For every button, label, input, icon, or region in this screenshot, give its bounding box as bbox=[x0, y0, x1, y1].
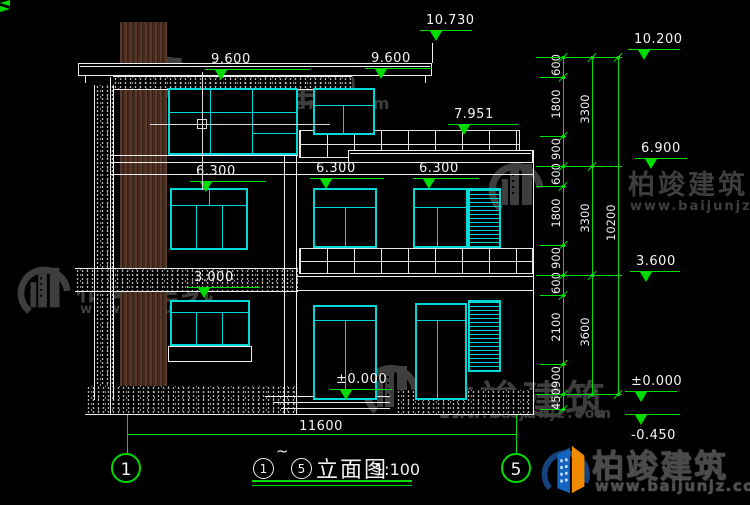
drawing-line bbox=[296, 276, 533, 277]
elevation-marker-label: 6.300 bbox=[316, 161, 356, 176]
dimension-arrow-right bbox=[0, 6, 10, 12]
watermark-logo bbox=[16, 260, 74, 322]
elevation-marker-triangle bbox=[640, 272, 652, 282]
window-mullion bbox=[168, 112, 298, 113]
elevation-marker-label: 6.900 bbox=[641, 141, 681, 156]
cad-pickbox bbox=[197, 119, 207, 129]
elevation-marker-line bbox=[625, 391, 677, 392]
level-line bbox=[540, 295, 566, 296]
elevation-marker-triangle bbox=[458, 125, 470, 135]
dimension-chain-line bbox=[563, 57, 564, 409]
bottom-dimension-label: 11600 bbox=[271, 419, 371, 434]
louver-panel bbox=[468, 300, 501, 372]
elevation-marker-triangle bbox=[375, 69, 387, 79]
elevation-marker-label: 10.730 bbox=[426, 13, 475, 28]
roof-slab bbox=[168, 346, 252, 362]
elevation-marker-line bbox=[635, 158, 687, 159]
window-mullion bbox=[313, 105, 375, 106]
grid-line-1 bbox=[127, 415, 128, 453]
window-mullion bbox=[413, 207, 468, 208]
elevation-marker-label: ±0.000 bbox=[631, 374, 682, 389]
window-mullion bbox=[252, 133, 298, 134]
elevation-marker-line bbox=[630, 271, 680, 272]
level-line bbox=[540, 364, 566, 365]
title-underline-2 bbox=[252, 485, 412, 486]
elevation-marker-label: 7.951 bbox=[454, 107, 494, 122]
drawing-line bbox=[425, 76, 426, 83]
level-line bbox=[536, 275, 622, 276]
drawing-line bbox=[533, 150, 534, 415]
window-mullion bbox=[196, 312, 197, 346]
elevation-marker-triangle bbox=[635, 392, 647, 402]
dimension-chain-line bbox=[618, 57, 619, 394]
drawing-line bbox=[85, 414, 533, 415]
drawing-line bbox=[94, 85, 95, 400]
window-mullion bbox=[196, 205, 197, 250]
elevation-marker-label: ±0.000 bbox=[336, 372, 387, 387]
elevation-marker-line bbox=[625, 414, 680, 415]
bottom-dimension-line bbox=[127, 434, 516, 435]
elevation-marker-triangle bbox=[320, 179, 332, 189]
elevation-marker-triangle bbox=[635, 415, 647, 425]
drawing-line bbox=[350, 153, 531, 154]
dimension-label: 1800 bbox=[549, 86, 563, 122]
level-line bbox=[536, 186, 566, 187]
window-mullion bbox=[415, 320, 467, 321]
grid-line-5 bbox=[516, 415, 517, 453]
drawing-line bbox=[113, 85, 114, 400]
window bbox=[313, 88, 375, 135]
window-mullion bbox=[437, 320, 438, 400]
elevation-marker-triangle bbox=[423, 179, 435, 189]
elevation-marker-triangle bbox=[215, 70, 227, 80]
window-mullion bbox=[345, 207, 346, 248]
window-mullion bbox=[170, 312, 250, 313]
dimension-label: 3600 bbox=[578, 314, 592, 350]
title-tilde: ~ bbox=[276, 442, 289, 460]
drawing-line bbox=[296, 290, 533, 291]
elevation-marker-label: 3.000 bbox=[194, 270, 234, 285]
louver-panel bbox=[468, 188, 501, 248]
drawing-line bbox=[80, 66, 430, 67]
elevation-marker-triangle bbox=[645, 159, 657, 169]
elevation-marker-label: 3.600 bbox=[636, 254, 676, 269]
elevation-marker-line bbox=[628, 49, 680, 50]
drawing-line bbox=[281, 408, 390, 409]
window-mullion bbox=[170, 205, 248, 206]
window bbox=[170, 300, 250, 346]
drawing-line bbox=[273, 402, 390, 403]
elevation-marker-triangle bbox=[638, 50, 650, 60]
drawing-line bbox=[110, 77, 111, 415]
dimension-label: 450 bbox=[549, 381, 563, 417]
level-line bbox=[536, 57, 622, 58]
elevation-marker-triangle bbox=[198, 288, 210, 298]
window-mullion bbox=[345, 320, 346, 400]
window-mullion bbox=[252, 88, 253, 155]
elevation-marker-label: 9.600 bbox=[211, 52, 251, 67]
elevation-marker-triangle bbox=[430, 31, 442, 41]
watermark-logo-icon bbox=[16, 260, 74, 318]
brand-logo-website: www.baijunjz.com bbox=[595, 477, 750, 495]
brand-logo-icon bbox=[541, 437, 595, 499]
dimension-chain-line bbox=[592, 57, 593, 394]
window-mullion bbox=[222, 205, 223, 250]
level-line bbox=[540, 245, 566, 246]
level-line bbox=[536, 394, 622, 395]
stipple-hatch bbox=[86, 386, 298, 414]
window-mullion bbox=[210, 88, 211, 155]
elevation-marker-label: 9.600 bbox=[371, 51, 411, 66]
balcony-railing bbox=[299, 248, 533, 274]
dimension-label: 2100 bbox=[549, 309, 563, 345]
grid-bubble-1: 1 bbox=[111, 453, 141, 483]
title-underline bbox=[252, 480, 412, 482]
level-line bbox=[536, 166, 622, 167]
elevation-marker-triangle bbox=[340, 390, 352, 400]
dimension-label: 3300 bbox=[578, 91, 592, 127]
cad-canvas[interactable]: 柏竣建筑www.baijunjz.com 柏竣建筑www.baijunjz.co… bbox=[0, 0, 750, 505]
dimension-label: 1800 bbox=[549, 195, 563, 231]
level-line bbox=[540, 409, 566, 410]
level-line bbox=[540, 136, 566, 137]
elevation-marker-line bbox=[420, 30, 472, 31]
annotation-layer: 10.7309.6009.6007.9516.3006.3006.3003.00… bbox=[0, 0, 750, 12]
drawing-line bbox=[85, 76, 86, 83]
level-line bbox=[540, 77, 566, 78]
title-end-bubble: 5 bbox=[291, 458, 312, 479]
drawing-line bbox=[432, 43, 433, 63]
window bbox=[168, 88, 298, 155]
window-mullion bbox=[343, 105, 344, 135]
grid-bubble-5: 5 bbox=[501, 453, 531, 483]
watermark-website: www.baijunjz.com bbox=[630, 199, 750, 214]
dimension-label: 3300 bbox=[578, 200, 592, 236]
window-mullion bbox=[222, 312, 223, 346]
stipple-band bbox=[75, 268, 298, 292]
elevation-marker-label: 6.300 bbox=[419, 161, 459, 176]
dimension-label: 10200 bbox=[604, 205, 618, 241]
title-start-bubble: 1 bbox=[253, 458, 274, 479]
drawing-line bbox=[110, 155, 298, 156]
window bbox=[413, 188, 468, 248]
window-mullion bbox=[437, 207, 438, 248]
title-scale: 1:100 bbox=[374, 460, 420, 479]
window bbox=[415, 303, 467, 400]
elevation-marker-label: 10.200 bbox=[634, 32, 683, 47]
